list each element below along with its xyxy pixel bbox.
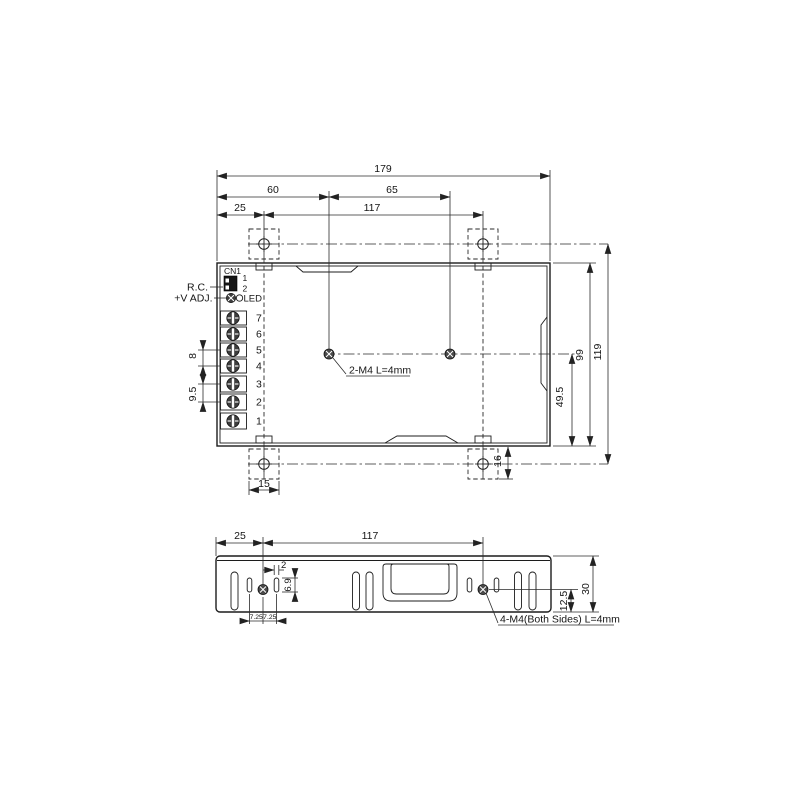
dim-hole-span: 65 — [386, 184, 398, 196]
terminal-screw — [227, 415, 239, 427]
cn1-pin1-label: 1 — [243, 273, 248, 283]
power-supply-mechanical-drawing: 2-M4 L=4mm CN1 1 2 R.C. +V ADJ. LED 7 6 — [0, 0, 800, 800]
terminal-screw — [227, 344, 239, 356]
terminal-screw — [227, 328, 239, 340]
side-m4-hole — [258, 585, 268, 595]
leader-line — [333, 358, 346, 374]
potentiometer — [226, 293, 235, 302]
dim-slot-offset-right: 7.25 — [263, 614, 276, 621]
side-cutout-inner — [391, 564, 449, 594]
dim-hole-from-bottom: 49.5 — [554, 387, 566, 408]
terminal-screw — [227, 312, 239, 324]
cover-mounting-holes: 2-M4 L=4mm — [324, 191, 578, 377]
side-view-case — [216, 556, 551, 612]
terminal-7-label: 7 — [256, 313, 262, 325]
vent-slot — [231, 572, 238, 610]
dim-slot-offset-left: 7.25 — [250, 614, 263, 621]
vent-slot — [366, 572, 373, 610]
leader-line — [486, 593, 498, 623]
terminal-screw — [227, 396, 239, 408]
terminal-block: 7 6 5 4 3 2 1 — [221, 311, 263, 429]
control-panel: CN1 1 2 R.C. +V ADJ. LED — [174, 266, 262, 305]
cn1-pin — [226, 286, 230, 290]
dim-side-bracket-offset: 25 — [234, 530, 246, 542]
vent-slot — [515, 572, 522, 610]
dim-slot-height: 6.9 — [283, 578, 294, 591]
top-view-case — [217, 263, 550, 446]
vent-slot — [353, 572, 360, 610]
terminal-6-label: 6 — [256, 329, 262, 341]
led-label: LED — [244, 294, 263, 305]
top-view: 2-M4 L=4mm CN1 1 2 R.C. +V ADJ. LED 7 6 — [174, 163, 608, 495]
dim-overall-depth: 119 — [592, 343, 604, 360]
small-slot — [247, 578, 252, 592]
annotation-2-m4: 2-M4 L=4mm — [349, 365, 411, 377]
annotation-4-m4: 4-M4(Both Sides) L=4mm — [500, 614, 620, 626]
small-slot — [494, 578, 499, 592]
mounting-brackets-hidden — [248, 211, 608, 479]
dim-bracket-width: 15 — [258, 478, 270, 490]
side-view: 25 117 2 6.9 7.25 7.25 30 — [216, 530, 620, 626]
voltage-adjust-label: +V ADJ. — [174, 293, 212, 305]
terminal-1-label: 1 — [256, 416, 262, 428]
cn1-pin — [226, 279, 230, 283]
vent-slot — [529, 572, 536, 610]
bottom-edge-louver — [385, 436, 458, 443]
terminal-screw — [227, 360, 239, 372]
dim-bracket-offset-left: 25 — [234, 202, 246, 214]
cn1-pin2-label: 2 — [243, 284, 248, 294]
dim-bracket-height: 16 — [492, 455, 504, 467]
dim-bracket-span: 117 — [364, 202, 381, 214]
terminal-3-label: 3 — [256, 379, 262, 391]
top-edge-louver — [296, 266, 358, 272]
cn1-label: CN1 — [224, 266, 241, 276]
small-slot — [467, 578, 472, 592]
dim-hole-offset-left: 60 — [267, 184, 279, 196]
dim-case-depth: 99 — [574, 349, 586, 361]
dim-total-width: 179 — [374, 163, 392, 175]
terminal-5-label: 5 — [256, 345, 262, 357]
terminal-2-label: 2 — [256, 397, 262, 409]
terminal-screw — [227, 378, 239, 390]
dim-side-hole-from-bottom: 12.5 — [558, 591, 570, 612]
dim-slot-width: 2 — [281, 560, 286, 571]
dim-terminal-pitch-large: 9.5 — [187, 387, 199, 402]
m4-hole — [324, 349, 334, 359]
m4-hole — [445, 349, 455, 359]
mechanical-drawing-page: 2-M4 L=4mm CN1 1 2 R.C. +V ADJ. LED 7 6 — [0, 0, 800, 800]
dim-side-bracket-span: 117 — [362, 530, 379, 542]
led-indicator — [236, 295, 242, 301]
small-slot — [274, 578, 279, 592]
dim-terminal-pitch-small: 8 — [187, 353, 199, 359]
side-m4-hole — [478, 585, 488, 595]
terminal-4-label: 4 — [256, 361, 262, 373]
side-cutout-outer — [383, 564, 457, 601]
top-view-dimensions: 179 60 65 25 117 49.5 99 119 16 15 — [187, 163, 608, 495]
dim-side-height: 30 — [580, 583, 592, 595]
